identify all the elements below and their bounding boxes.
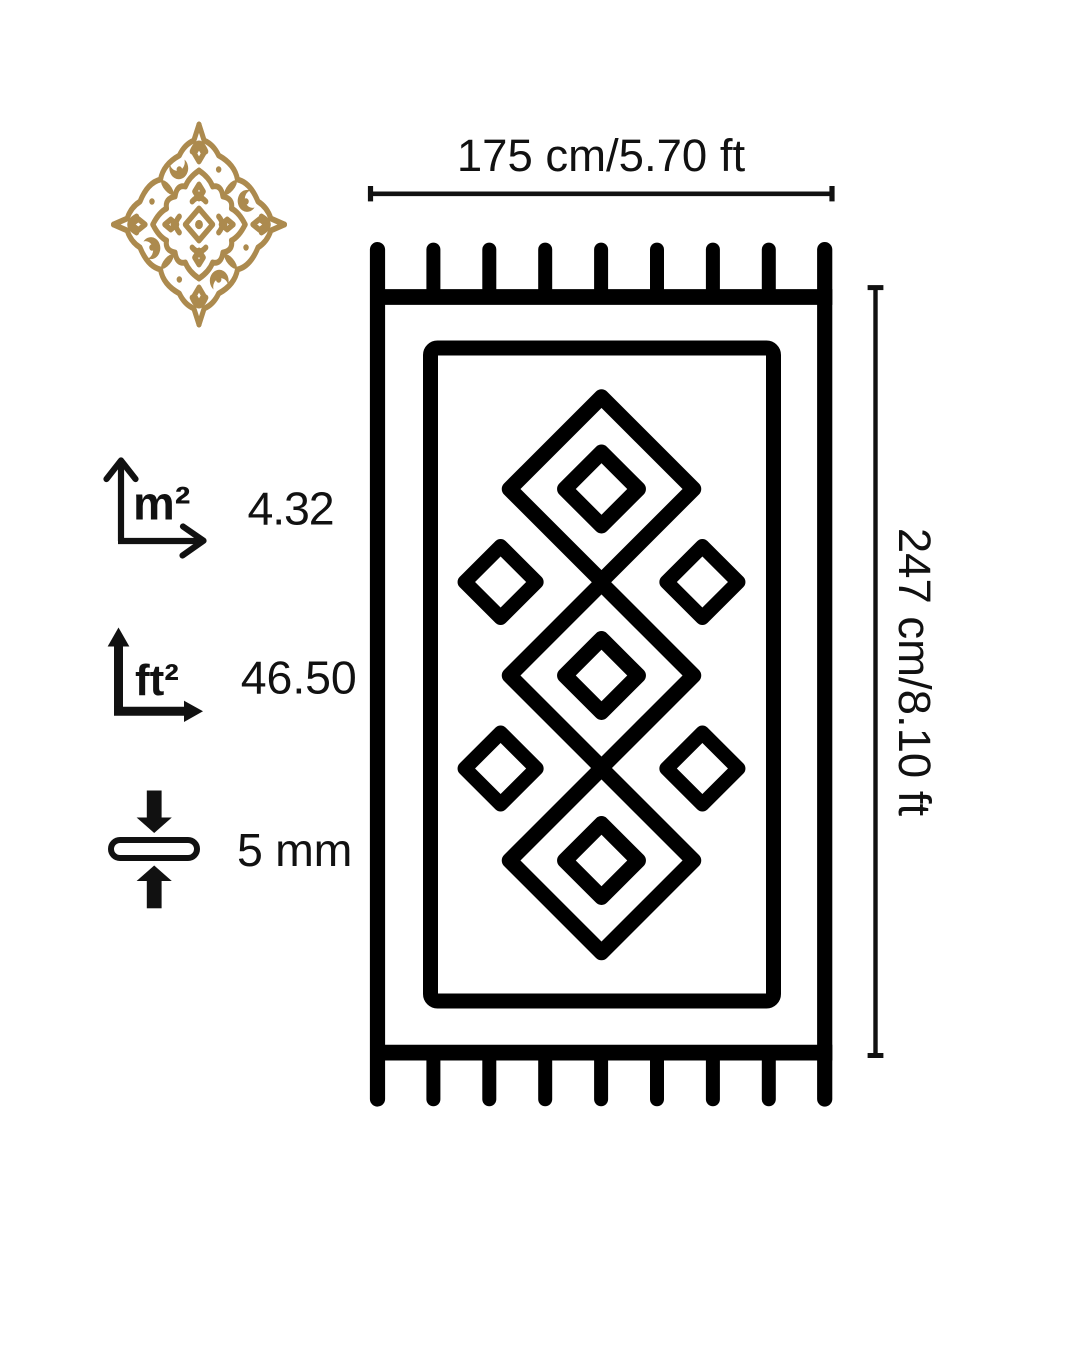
svg-text:m²: m² — [133, 477, 190, 530]
svg-text:175 cm/5.70 ft: 175 cm/5.70 ft — [457, 130, 746, 181]
svg-text:ft²: ft² — [135, 656, 179, 705]
svg-text:46.50: 46.50 — [241, 651, 357, 703]
svg-text:4.32: 4.32 — [248, 483, 334, 535]
svg-text:5 mm: 5 mm — [237, 824, 352, 876]
svg-text:247 cm/8.10 ft: 247 cm/8.10 ft — [889, 528, 940, 817]
